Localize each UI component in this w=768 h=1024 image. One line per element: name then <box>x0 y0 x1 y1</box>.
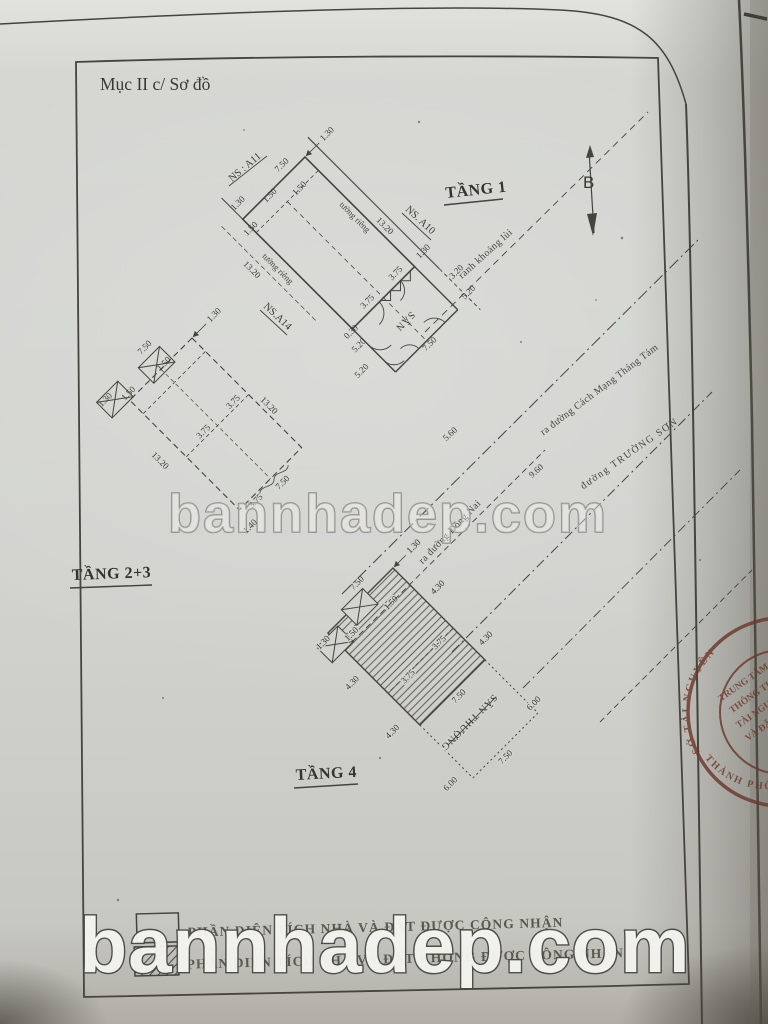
setback-line <box>425 112 648 332</box>
crossed-box <box>97 343 175 421</box>
wall-label: tường riêng <box>338 199 374 235</box>
dim-label: 6.00 <box>441 774 460 793</box>
dim-label: 4.30 <box>343 673 362 692</box>
dim-label: 1.50 <box>260 186 279 205</box>
dim-label: 1.50 <box>241 219 260 238</box>
photographed-floorplan-document: Mục II c/ Sơ đồ B 1.30 7.50 1.50 1.50 1.… <box>0 0 768 1024</box>
title-tang1: TẦNG 1 <box>444 177 507 202</box>
dim-label: 13.20 <box>241 259 263 281</box>
street-label-cmt8: ra đường Cách Mạng Tháng Tám <box>538 342 660 438</box>
north-arrow: B <box>583 145 597 236</box>
watermark-bottom: bannhadep.com <box>79 901 690 989</box>
section-title: Mục II c/ Sơ đồ <box>100 74 211 94</box>
dim-label: 13.20 <box>374 215 396 237</box>
dim-label: 5.20 <box>352 361 371 380</box>
tang4-hatched-block <box>328 568 485 725</box>
dim-label: 13.20 <box>150 450 172 472</box>
dim-label: 7.50 <box>272 155 291 174</box>
terrace-label: SÂN THƯỢNG <box>438 692 500 754</box>
dim-label: 1.30 <box>96 390 115 409</box>
dim-label: 7.50 <box>496 747 515 766</box>
dim-label: 5.20 <box>350 336 369 355</box>
dim-label: 1.50 <box>290 179 309 198</box>
street-label-truongson: đường TRƯỜNG SƠN <box>578 415 681 492</box>
dim-label: 3.75 <box>224 392 243 411</box>
watermark-middle: bannhadep.com <box>168 484 608 544</box>
dim-label: 1.30 <box>318 124 337 143</box>
dim-label: 1.30 <box>414 242 433 261</box>
arrowhead-up-icon <box>586 145 594 158</box>
dim-label: 6.00 <box>525 694 544 713</box>
dim-label: 4.30 <box>476 629 495 648</box>
dim-label: 3.75 <box>194 422 213 441</box>
stamp-ring-text-top: SỞ TÀI NGUYÊN <box>680 646 718 755</box>
document-drawing-layer: Mục II c/ Sơ đồ B 1.30 7.50 1.50 1.50 1.… <box>0 0 768 1024</box>
dim-label: 1.30 <box>229 194 248 213</box>
wall-label: tường riêng <box>260 251 296 287</box>
title-tang4: TẦNG 4 <box>295 762 357 784</box>
dim-label: 4.30 <box>428 578 447 597</box>
svg-text:SỞ TÀI NGUYÊN: SỞ TÀI NGUYÊN <box>680 646 718 755</box>
neighbor-label-a14: NS.A14 <box>261 301 294 333</box>
compass-label: B <box>583 173 594 192</box>
site-dim-label: 9.60 <box>527 461 546 479</box>
setback-label: ranh khoảng lùi <box>457 227 515 281</box>
dim-label: 5.20 <box>459 283 478 302</box>
arrowhead-down-icon <box>587 213 597 236</box>
plan-tang1: 1.30 7.50 1.50 1.50 1.30 1.50 13.20 13.2… <box>198 107 498 407</box>
street-line-dongnai <box>352 450 545 642</box>
dim-label: 1.30 <box>205 305 224 324</box>
dim-label: 1.50 <box>119 384 138 403</box>
yard-label: SÂN <box>393 309 418 334</box>
title-tang23: TẦNG 2+3 <box>71 562 151 584</box>
neighbor-label-a10: NS. A10 <box>403 204 437 237</box>
dim-label: 7.50 <box>135 338 154 357</box>
dim-label: 13.20 <box>258 395 280 417</box>
site-dim-label: 5.60 <box>441 424 460 442</box>
neighbor-label-a11: NS : A11 <box>227 151 264 184</box>
dim-label: 4.30 <box>383 722 402 741</box>
